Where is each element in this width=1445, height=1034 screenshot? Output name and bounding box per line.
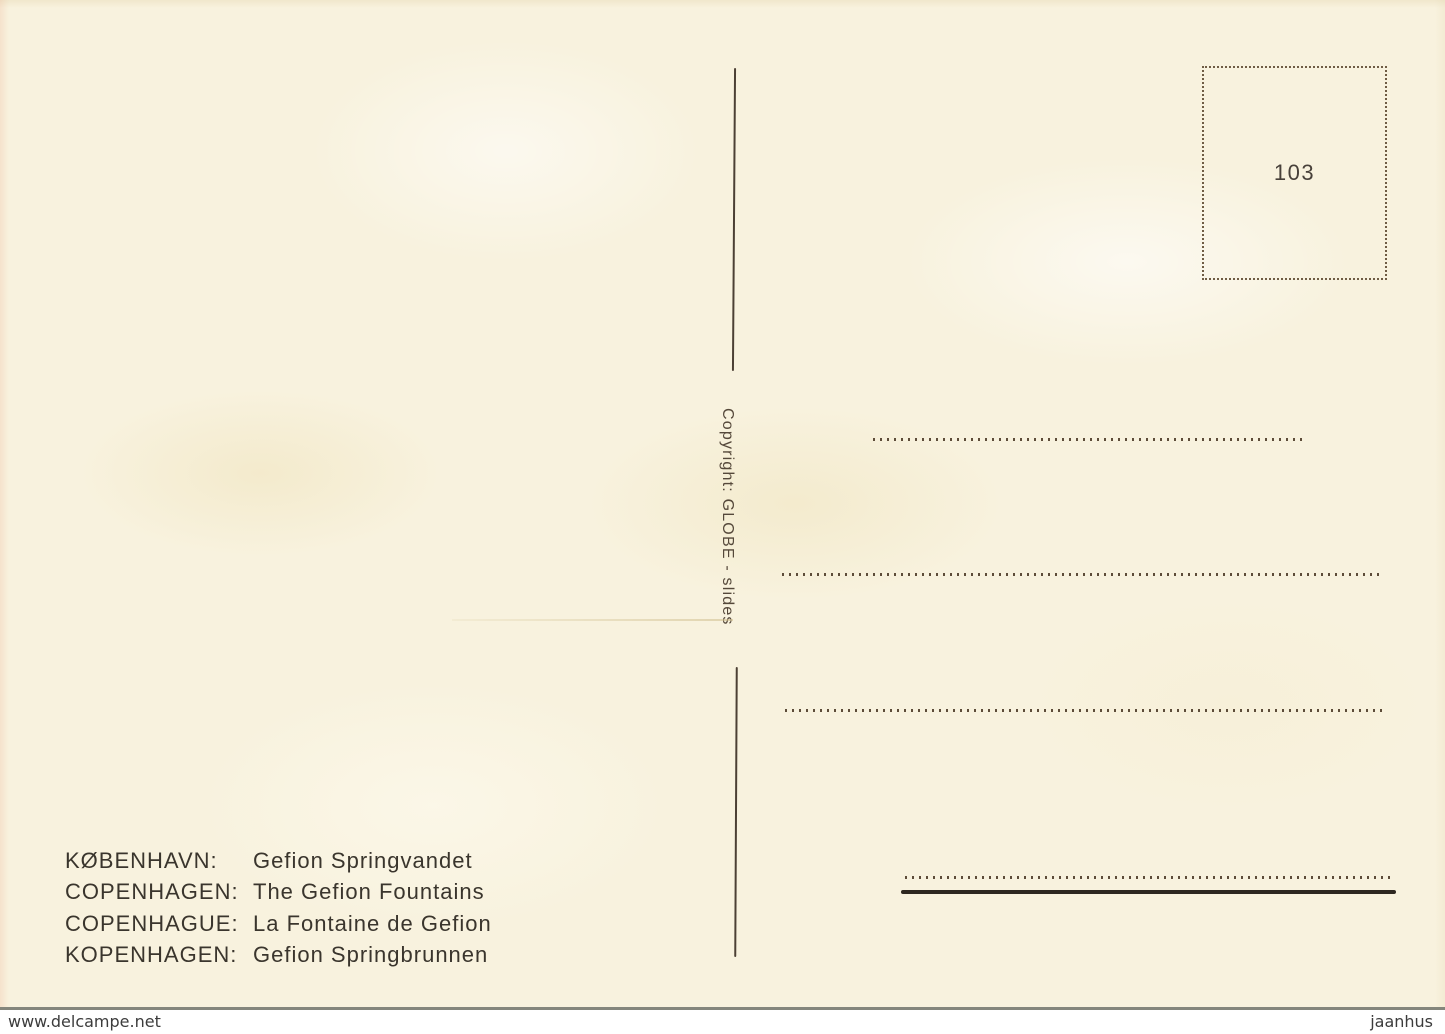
postcard-number: 103 [1274, 160, 1315, 186]
watermark-strip: www.delcampe.net jaanhus [0, 1010, 1445, 1034]
address-dotted-line-3 [785, 709, 1383, 712]
caption-title: Gefion Springvandet [253, 848, 473, 874]
caption-title: La Fontaine de Gefion [253, 911, 492, 937]
address-dotted-line-4 [905, 876, 1390, 879]
postcard-back: Copyright: GLOBE - slides 103 KØBENHAVN:… [0, 0, 1445, 1010]
address-heavy-underline [901, 890, 1396, 894]
caption-language-label: KOPENHAGEN: [65, 942, 253, 968]
caption-block: KØBENHAVN: Gefion Springvandet COPENHAGE… [65, 845, 492, 971]
stamp-box: 103 [1202, 66, 1387, 280]
address-dotted-line-2 [782, 573, 1382, 576]
faint-crease-line [452, 619, 733, 621]
caption-language-label: COPENHAGUE: [65, 911, 253, 937]
address-dotted-line-1 [873, 438, 1307, 441]
scanned-postcard-image: Copyright: GLOBE - slides 103 KØBENHAVN:… [0, 0, 1445, 1034]
caption-language-label: COPENHAGEN: [65, 879, 253, 905]
caption-row-english: COPENHAGEN: The Gefion Fountains [65, 877, 492, 909]
center-divider-bottom [734, 667, 738, 957]
center-divider-top [732, 68, 736, 371]
caption-title: Gefion Springbrunnen [253, 942, 488, 968]
caption-row-french: COPENHAGUE: La Fontaine de Gefion [65, 908, 492, 940]
caption-row-danish: KØBENHAVN: Gefion Springvandet [65, 845, 492, 877]
caption-language-label: KØBENHAVN: [65, 848, 253, 874]
copyright-credit-text: Copyright: GLOBE - slides [718, 408, 736, 633]
caption-title: The Gefion Fountains [253, 879, 485, 905]
watermark-seller: jaanhus [1370, 1012, 1433, 1031]
caption-row-german: KOPENHAGEN: Gefion Springbrunnen [65, 940, 492, 972]
watermark-delcampe: www.delcampe.net [8, 1012, 161, 1031]
